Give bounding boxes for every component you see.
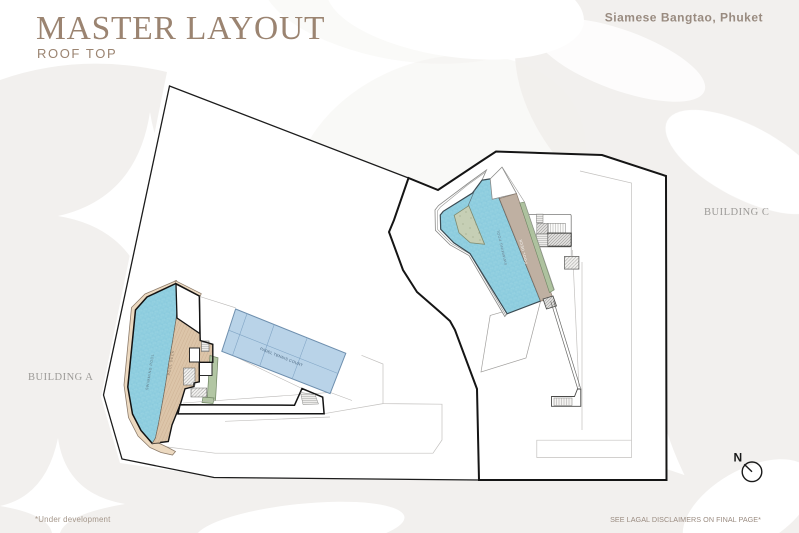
svg-text:ROOF TOP: ROOF TOP [37,46,117,61]
svg-text:SEE LAGAL DISCLAIMERS ON FINAL: SEE LAGAL DISCLAIMERS ON FINAL PAGE* [610,515,761,524]
svg-text:*Under development: *Under development [35,515,111,524]
svg-text:BUILDING C: BUILDING C [704,207,769,218]
svg-text:N: N [734,451,743,465]
svg-text:BUILDING A: BUILDING A [28,372,93,383]
svg-text:Siamese Bangtao, Phuket: Siamese Bangtao, Phuket [605,11,763,25]
svg-text:MASTER LAYOUT: MASTER LAYOUT [36,10,325,47]
